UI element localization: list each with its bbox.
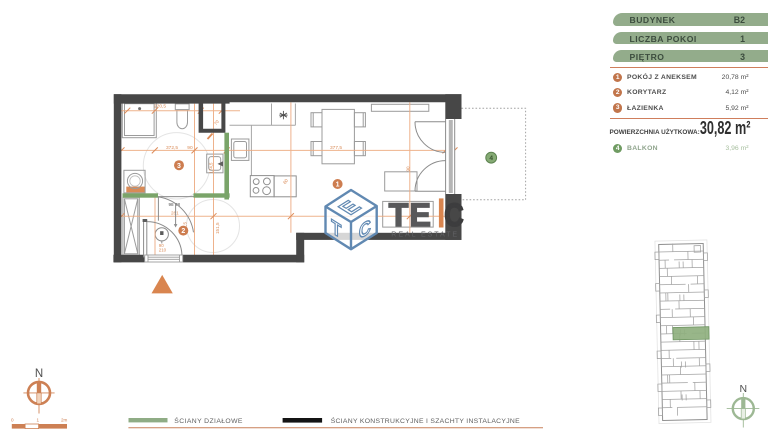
svg-text:1: 1 [37, 418, 40, 423]
svg-text:1: 1 [336, 182, 340, 189]
svg-text:372,5: 372,5 [166, 145, 178, 151]
svg-text:0: 0 [11, 418, 14, 423]
svg-text:ŚCIANY KONSTRUKCYJNE I SZACHTY: ŚCIANY KONSTRUKCYJNE I SZACHTY INSTALACY… [331, 416, 520, 425]
svg-text:REAL ESTATE: REAL ESTATE [391, 230, 459, 238]
svg-text:2m: 2m [61, 418, 68, 423]
svg-text:174,5: 174,5 [209, 162, 214, 174]
svg-text:90: 90 [406, 166, 411, 172]
svg-text:377,5: 377,5 [330, 145, 342, 151]
svg-text:90: 90 [187, 145, 193, 151]
svg-text:TE: TE [389, 197, 432, 233]
svg-text:220,5: 220,5 [154, 103, 166, 109]
svg-text:2: 2 [181, 228, 185, 235]
svg-text:281: 281 [171, 210, 179, 215]
svg-text:210: 210 [159, 247, 167, 252]
svg-text:60: 60 [282, 178, 289, 185]
svg-text:151,5: 151,5 [215, 222, 220, 234]
svg-text:4: 4 [489, 155, 493, 162]
svg-text:70: 70 [213, 119, 220, 126]
svg-text:3: 3 [177, 163, 181, 170]
svg-text:98: 98 [169, 202, 175, 207]
svg-text:ŚCIANY DZIAŁOWE: ŚCIANY DZIAŁOWE [174, 416, 243, 425]
svg-text:C: C [444, 198, 463, 234]
